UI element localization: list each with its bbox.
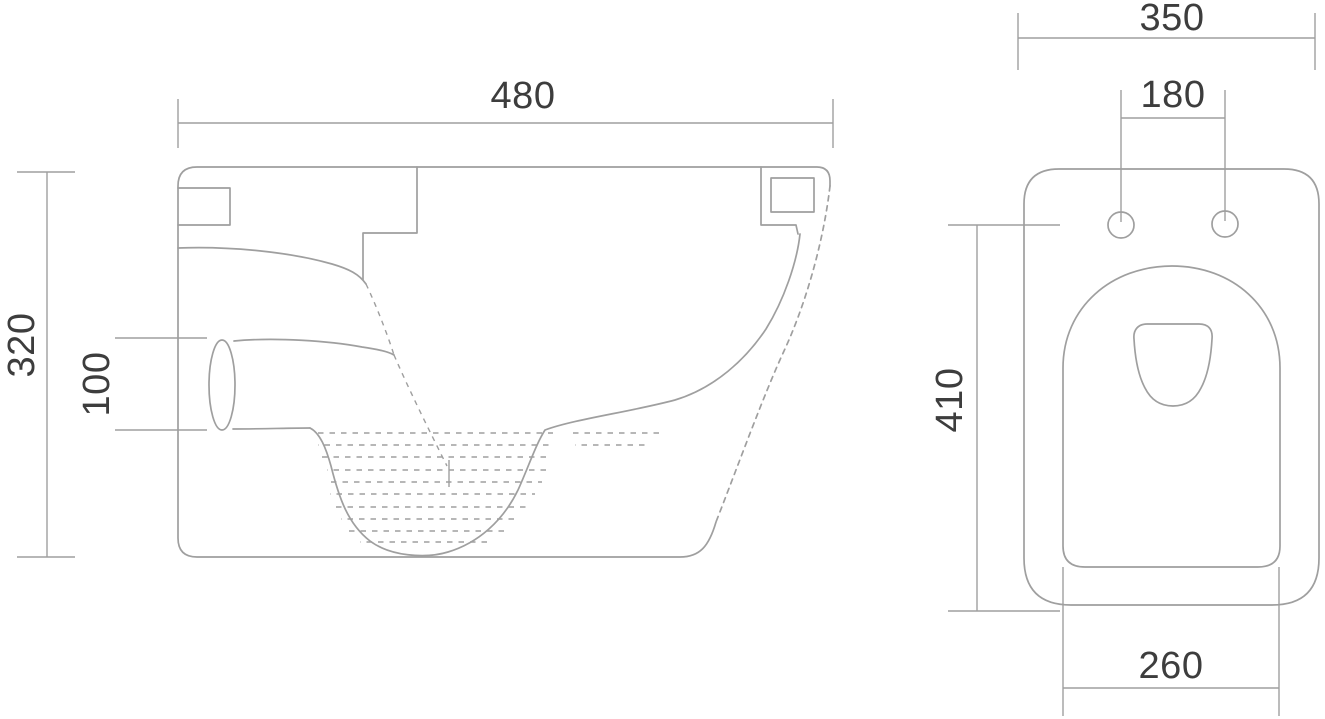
- dim-480-label: 480: [491, 75, 556, 117]
- dim-320: 320: [1, 172, 75, 557]
- dim-180: 180: [1121, 74, 1225, 222]
- side-view: 480 320 100: [1, 75, 833, 557]
- dim-100-line: [115, 338, 207, 430]
- dim-480: 480: [178, 75, 833, 148]
- side-back-hidden-edge: [716, 186, 830, 522]
- fixing-boss-right: [771, 178, 814, 212]
- top-view: 350 180 410 260: [929, 0, 1319, 716]
- dim-260-line: [1063, 567, 1279, 716]
- dim-350-label: 350: [1140, 0, 1205, 39]
- dim-260: 260: [1063, 567, 1279, 716]
- outlet-top-curve: [234, 339, 394, 355]
- drawing-page: 480 320 100 350 180: [0, 0, 1325, 719]
- dim-100: 100: [76, 338, 207, 430]
- top-body-outline: [1024, 169, 1319, 605]
- cistern-recess-lines: [363, 167, 417, 280]
- rim-inner-curve: [178, 248, 366, 284]
- trap-hidden-curve-lower: [394, 355, 447, 466]
- dim-350: 350: [1018, 0, 1315, 70]
- outlet-bottom-line: [233, 428, 310, 429]
- side-body-outline: [178, 167, 830, 557]
- dim-410: 410: [929, 225, 1060, 611]
- dim-260-label: 260: [1139, 645, 1204, 687]
- water-spot: [1134, 324, 1212, 406]
- technical-drawing-canvas: 480 320 100 350 180: [0, 0, 1325, 719]
- outlet-ellipse: [209, 340, 235, 430]
- trap-hidden-curve-upper: [366, 284, 394, 355]
- dim-410-label: 410: [929, 368, 971, 433]
- dim-320-label: 320: [1, 313, 43, 378]
- dim-100-label: 100: [76, 352, 118, 417]
- dim-180-label: 180: [1141, 74, 1206, 116]
- bowl-rim-inner: [1063, 266, 1280, 567]
- flush-opening-left: [178, 188, 230, 225]
- fixing-notch-right: [761, 167, 798, 234]
- water-hatch: [318, 433, 660, 542]
